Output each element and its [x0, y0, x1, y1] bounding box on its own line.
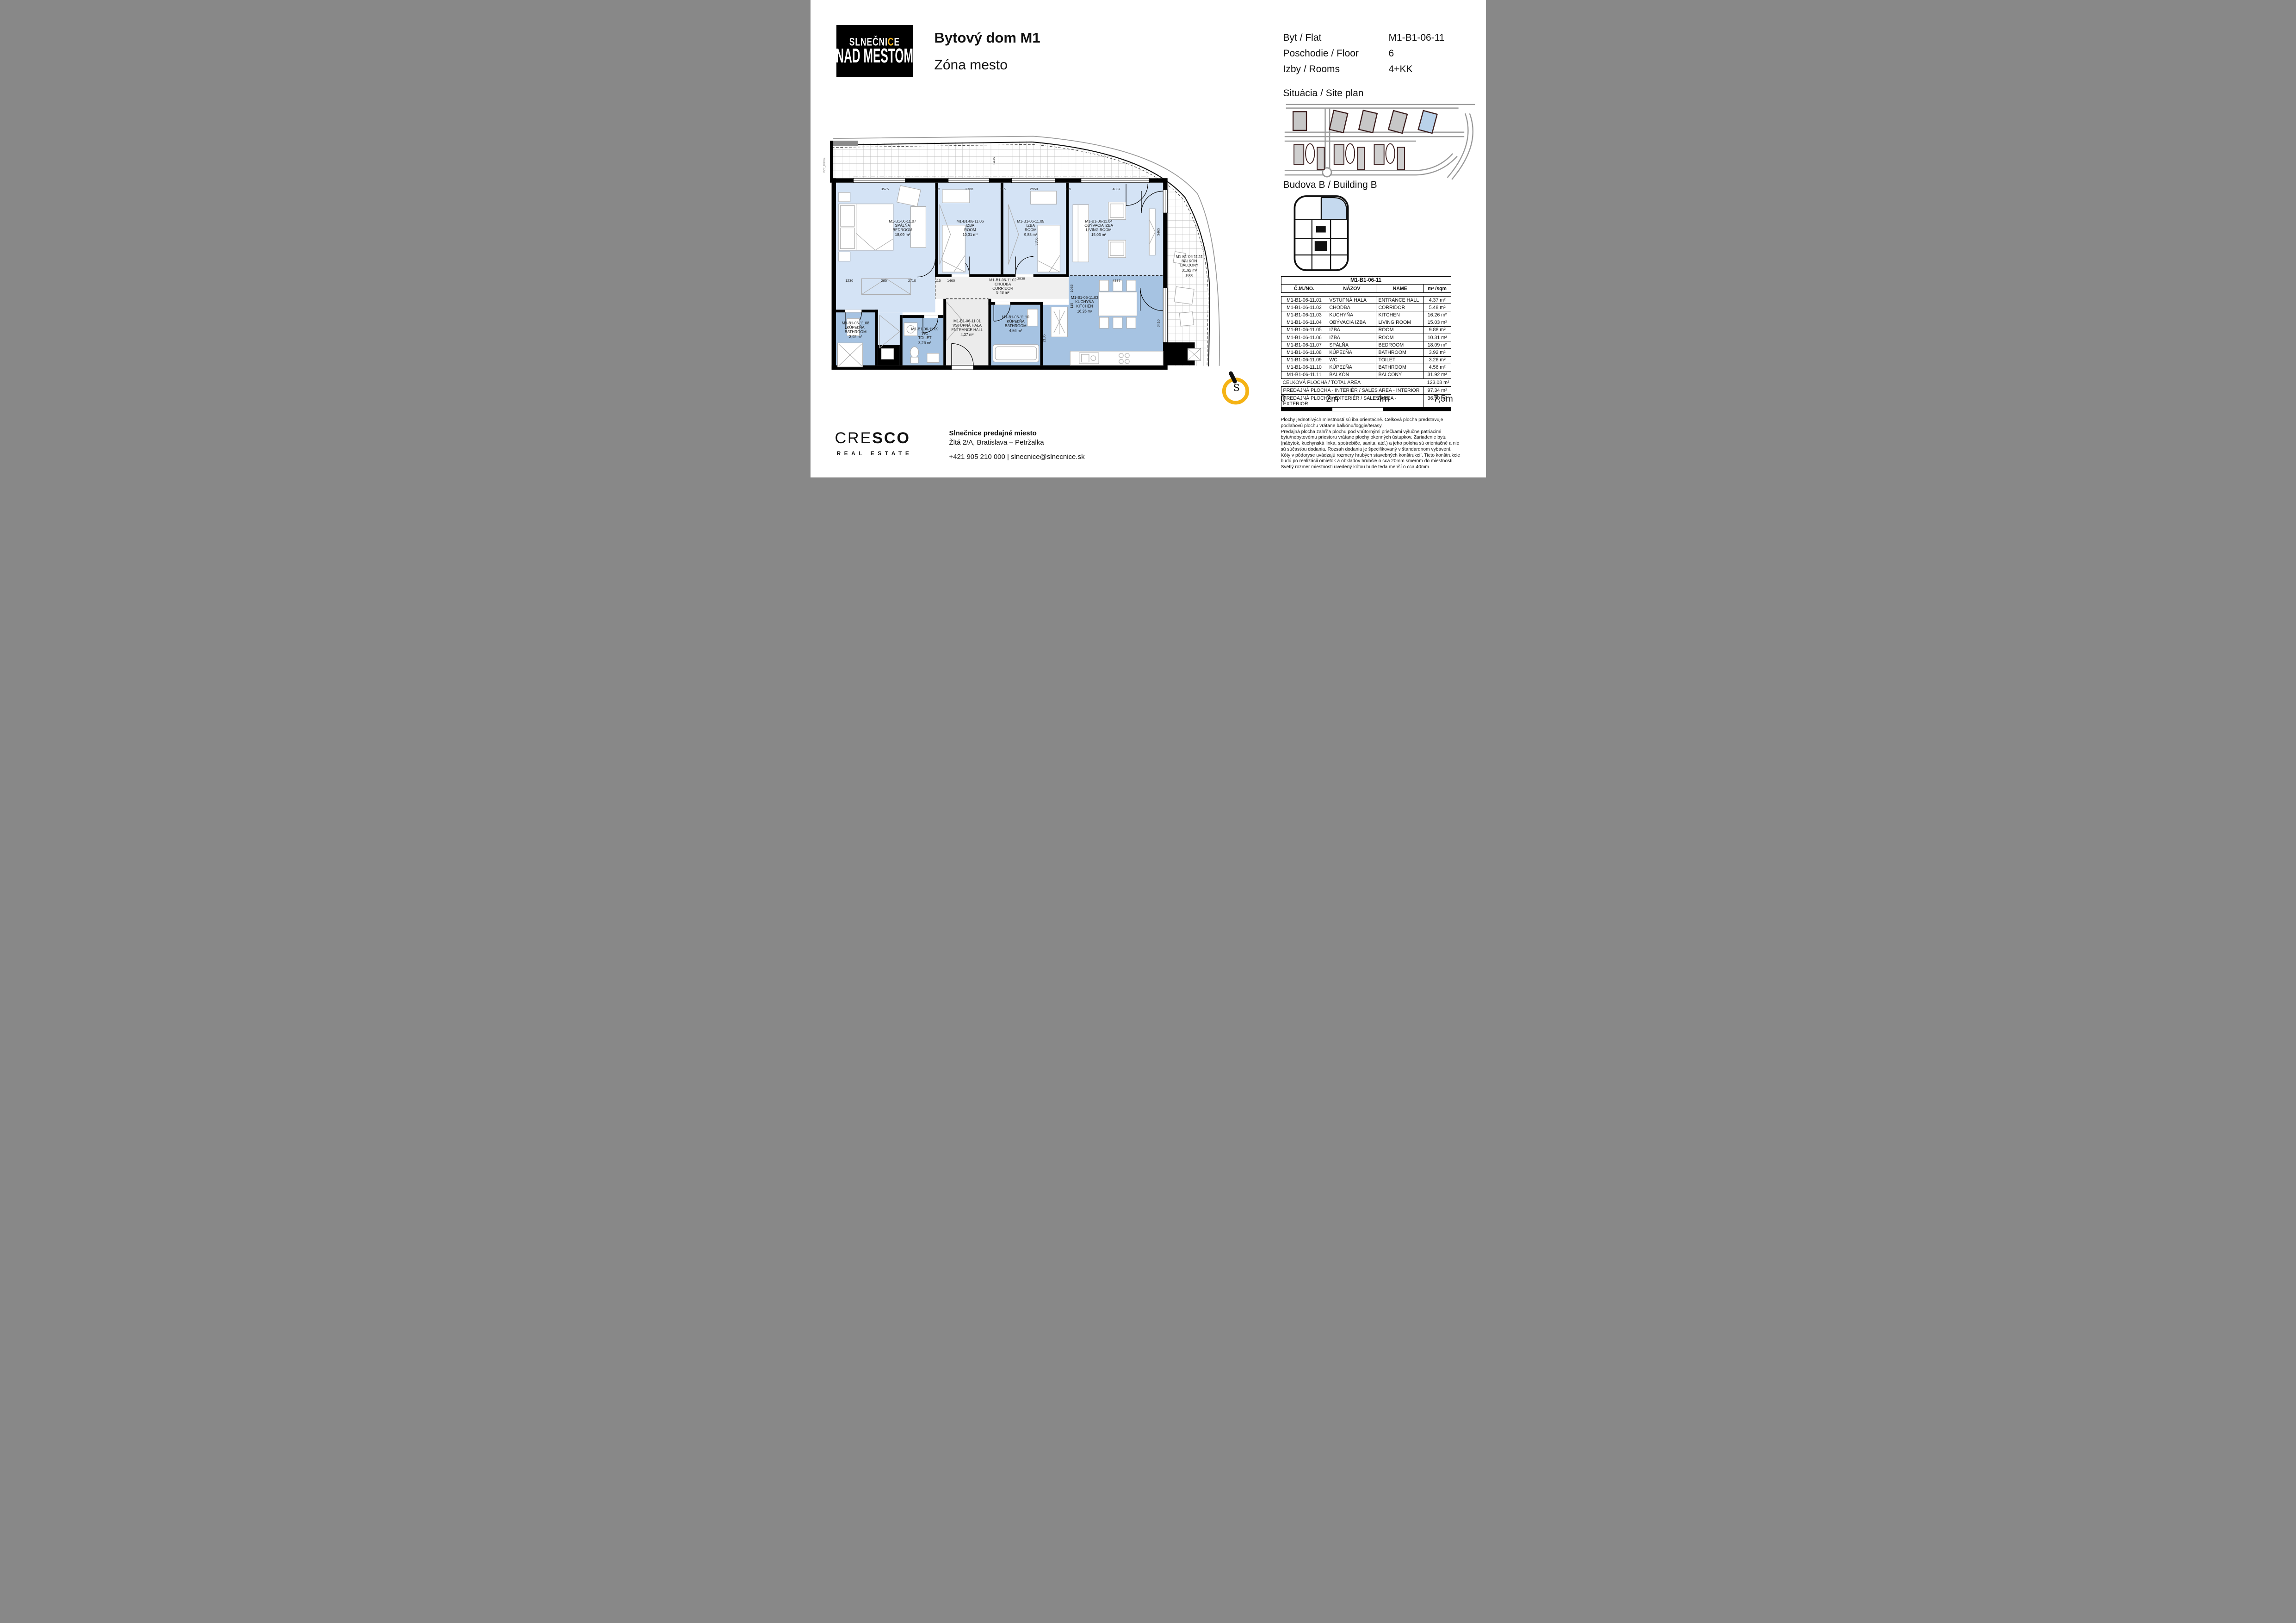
info-row-rooms: Izby / Rooms 4+KK: [1283, 64, 1468, 75]
info-row-flat: Byt / Flat M1-B1-06-11: [1283, 32, 1468, 43]
table-row: M1-B1-06-11.09WCTOILET3.26 m²: [1281, 356, 1451, 364]
svg-text:3,26 m²: 3,26 m²: [918, 341, 931, 345]
svg-text:3838: 3838: [1017, 277, 1025, 281]
table-row: M1-B1-06-11.01VSTUPNÁ HALAENTRANCE HALL4…: [1281, 297, 1451, 304]
svg-text:IZBA: IZBA: [1026, 223, 1035, 228]
svg-text:3410: 3410: [1156, 319, 1160, 327]
table-row: M1-B1-06-11.10KÚPEĽŇABATHROOM4.56 m²: [1281, 364, 1451, 371]
info-label: Byt / Flat: [1283, 32, 1389, 43]
vent-block: [832, 141, 857, 146]
svg-text:16,26 m²: 16,26 m²: [1077, 309, 1092, 313]
slnecnice-logo: SLNEČNICE NAD MESTOM: [836, 25, 913, 77]
scale-bar-segments: [1281, 407, 1451, 411]
door-gap-room06: [951, 274, 969, 277]
terrace-left-wall: [830, 141, 833, 183]
svg-text:TOILET: TOILET: [918, 336, 931, 340]
table-row: M1-B1-06-11.06IZBAROOM10.31 m²: [1281, 334, 1451, 341]
room-area-table: M1-B1-06-11 Č.M./NO. NÁZOV NAME m² /sqm …: [1281, 276, 1451, 408]
col-sqm: m² /sqm: [1423, 285, 1451, 292]
vzt-note: VZT_Klima.: [823, 157, 826, 173]
dining-table: [1099, 292, 1137, 316]
svg-text:BALCONY: BALCONY: [1180, 263, 1199, 267]
col-name: NAME: [1376, 285, 1423, 292]
north-compass: S: [1219, 370, 1252, 407]
table-row: M1-B1-06-11.07SPÁLŇABEDROOM18.09 m²: [1281, 341, 1451, 348]
svg-text:IZBA: IZBA: [965, 223, 974, 228]
col-nazov: NÁZOV: [1327, 285, 1376, 292]
svg-text:M1-B1-06-11.09: M1-B1-06-11.09: [911, 327, 938, 331]
door-gap-wc: [924, 315, 937, 318]
svg-text:115: 115: [934, 187, 940, 191]
title-building: Bytový dom M1: [934, 30, 1040, 46]
svg-text:M1-B1-06-11.03: M1-B1-06-11.03: [1071, 296, 1098, 300]
nightstand: [838, 192, 850, 202]
building-heading: Budova B / Building B: [1283, 180, 1377, 191]
scale-2m: 2m: [1326, 394, 1338, 404]
info-value: M1-B1-06-11: [1389, 32, 1445, 43]
door-gap-bath08: [845, 310, 861, 312]
window-room06: [948, 178, 989, 182]
site-roads: [1284, 105, 1474, 180]
toilet: [910, 347, 918, 358]
site-plan-heading: Situácia / Site plan: [1283, 88, 1364, 99]
svg-text:BEDROOM: BEDROOM: [892, 228, 912, 232]
svg-text:BATHROOM: BATHROOM: [1004, 324, 1026, 328]
balcony-furniture: [1174, 287, 1194, 304]
svg-text:ROOM: ROOM: [1024, 228, 1036, 232]
info-row-floor: Poschodie / Floor 6: [1283, 48, 1468, 59]
building-b-diagram: [1292, 193, 1351, 273]
svg-text:15,03 m²: 15,03 m²: [1091, 233, 1106, 237]
entrance-door-gap: [951, 365, 973, 370]
table-row: M1-B1-06-11.11BALKÓNBALCONY31.92 m²: [1281, 371, 1451, 378]
svg-text:285: 285: [881, 279, 887, 283]
window-bedroom: [853, 178, 905, 182]
svg-text:2710: 2710: [908, 279, 916, 283]
site-plan-map: [1282, 100, 1479, 180]
svg-text:1230: 1230: [845, 279, 853, 283]
svg-text:KITCHEN: KITCHEN: [1076, 304, 1093, 309]
contact-block: Slnečnice predajné miesto Žltá 2/A, Brat…: [949, 429, 1085, 461]
cresco-logo: CRESCO REAL ESTATE: [835, 429, 913, 457]
table-row: M1-B1-06-11.08KÚPEĽŇABATHROOM3.92 m²: [1281, 348, 1451, 356]
svg-text:OBÝVACIA IZBA: OBÝVACIA IZBA: [1084, 223, 1113, 228]
bed-06: [942, 225, 965, 272]
svg-text:2185: 2185: [1042, 335, 1046, 342]
svg-text:4337: 4337: [1112, 279, 1120, 283]
shaft: [881, 348, 893, 359]
svg-text:115: 115: [1000, 187, 1005, 191]
table-row: M1-B1-06-11.05IZBAROOM9.88 m²: [1281, 326, 1451, 334]
site-buildings-bottom: [1294, 144, 1405, 170]
cresco-thin: CRE: [835, 429, 873, 447]
svg-text:1660: 1660: [1185, 273, 1193, 277]
col-no: Č.M./NO.: [1281, 285, 1327, 292]
door-gap-bath10: [995, 302, 1010, 305]
wardrobe-bedroom: [910, 207, 926, 248]
table-total-row: CELKOVÁ PLOCHA / TOTAL AREA 123.08 m²: [1281, 379, 1451, 386]
info-value: 6: [1389, 48, 1394, 59]
svg-text:BALKÓN: BALKÓN: [1182, 259, 1197, 263]
table-header: Č.M./NO. NÁZOV NAME m² /sqm: [1281, 285, 1451, 293]
wc-sink: [927, 353, 939, 363]
cooktop: [1119, 353, 1123, 358]
balcony-furniture: [1179, 312, 1194, 326]
svg-text:M1-B1-06-11.08: M1-B1-06-11.08: [842, 321, 869, 325]
nightstand: [838, 252, 850, 261]
window-room05: [1011, 178, 1055, 182]
flat-info: Byt / Flat M1-B1-06-11 Poschodie / Floor…: [1283, 32, 1468, 80]
svg-text:M1-B1-06-11.07: M1-B1-06-11.07: [889, 219, 916, 223]
svg-text:3465: 3465: [1156, 228, 1160, 236]
svg-text:3575: 3575: [880, 187, 888, 191]
balcony-door-kitchen: [1163, 288, 1167, 342]
building-core: [1314, 241, 1327, 251]
svg-text:M1-B1-06-11.05: M1-B1-06-11.05: [1017, 219, 1044, 223]
svg-text:1435: 1435: [992, 157, 996, 165]
svg-text:KÚPEĽŇA: KÚPEĽŇA: [847, 325, 865, 330]
building-core: [1316, 226, 1325, 232]
cresco-bold: SCO: [872, 429, 910, 447]
site-buildings-row: [1293, 110, 1437, 133]
title-zone: Zóna mesto: [934, 57, 1040, 73]
svg-text:M1-B1-06-11.11: M1-B1-06-11.11: [1176, 254, 1203, 259]
svg-text:LIVING ROOM: LIVING ROOM: [1086, 228, 1111, 232]
sofa: [1073, 204, 1089, 262]
balcony-door-living: [1163, 190, 1167, 213]
scale-7-5m: 7,5m: [1434, 394, 1453, 404]
svg-text:KÚPEĽŇA: KÚPEĽŇA: [1007, 319, 1025, 324]
svg-text:115: 115: [1070, 303, 1074, 308]
bathtub: [993, 345, 1039, 362]
svg-text:WC: WC: [922, 332, 928, 336]
svg-text:2768: 2768: [965, 187, 973, 191]
svg-text:18,09 m²: 18,09 m²: [895, 233, 910, 237]
svg-text:115: 115: [1065, 187, 1071, 191]
compass-s: S: [1233, 382, 1239, 393]
svg-text:M1-B1-06-11.06: M1-B1-06-11.06: [956, 219, 984, 223]
floor-plan: M1-B1-06-11.07 SPÁLŇA BEDROOM 18,09 m² M…: [821, 135, 1230, 375]
svg-text:M1-B1-06-11.04: M1-B1-06-11.04: [1085, 219, 1112, 223]
page-title: Bytový dom M1 Zóna mesto: [934, 30, 1040, 73]
svg-text:4,37 m²: 4,37 m²: [960, 333, 973, 337]
logo-line2: NAD MESTOM: [836, 45, 914, 68]
svg-text:M1-B1-06-11.02: M1-B1-06-11.02: [989, 278, 1016, 282]
bed-05: [1038, 225, 1060, 272]
scale-bar: 0 2m 4m 7,5m: [1281, 394, 1451, 414]
svg-text:ENTRANCE HALL: ENTRANCE HALL: [951, 328, 983, 332]
desk-06: [942, 190, 969, 203]
info-label: Poschodie / Floor: [1283, 48, 1389, 59]
table-sales-interior-row: PREDAJNÁ PLOCHA - INTERIÉR / SALES AREA …: [1281, 386, 1451, 395]
table-title: M1-B1-06-11: [1281, 276, 1451, 285]
building-highlight-unit: [1321, 198, 1347, 220]
svg-text:5,48 m²: 5,48 m²: [996, 291, 1009, 295]
svg-text:10,31 m²: 10,31 m²: [962, 233, 978, 237]
scale-0: 0: [1281, 394, 1286, 404]
tv-unit: [1149, 209, 1155, 255]
svg-text:4337: 4337: [1112, 187, 1120, 191]
info-label: Izby / Rooms: [1283, 64, 1389, 75]
scale-4m: 4m: [1377, 394, 1389, 404]
svg-text:SPÁLŇA: SPÁLŇA: [895, 223, 910, 228]
info-value: 4+KK: [1389, 64, 1413, 75]
svg-text:BATHROOM: BATHROOM: [844, 330, 866, 334]
window-living: [1081, 178, 1149, 182]
contact-address: Žltá 2/A, Bratislava – Petržalka: [949, 439, 1085, 446]
svg-text:9,88 m²: 9,88 m²: [1024, 233, 1037, 237]
svg-text:1460: 1460: [947, 279, 955, 283]
table-body: M1-B1-06-11.01VSTUPNÁ HALAENTRANCE HALL4…: [1281, 296, 1451, 379]
cresco-realestate: REAL ESTATE: [837, 450, 913, 457]
svg-text:CORRIDOR: CORRIDOR: [992, 286, 1013, 291]
desk-05: [1030, 191, 1056, 204]
datasheet-page: SLNEČNICE NAD MESTOM Bytový dom M1 Zóna …: [811, 0, 1486, 477]
svg-text:KUCHYŇA: KUCHYŇA: [1075, 299, 1094, 304]
contact-name: Slnečnice predajné miesto: [949, 429, 1085, 437]
svg-text:M1-B1-06-11.01: M1-B1-06-11.01: [953, 319, 980, 323]
svg-text:31,92 m²: 31,92 m²: [1182, 268, 1197, 273]
svg-text:3350: 3350: [1034, 238, 1038, 246]
table-row: M1-B1-06-11.04OBÝVACIA IZBALIVING ROOM15…: [1281, 319, 1451, 326]
svg-text:4,56 m²: 4,56 m²: [1009, 329, 1022, 333]
svg-text:115: 115: [935, 279, 941, 283]
svg-text:3,92 m²: 3,92 m²: [849, 335, 862, 339]
svg-text:CHODBA: CHODBA: [995, 282, 1011, 286]
svg-text:VSTUPNÁ HALA: VSTUPNÁ HALA: [953, 323, 982, 328]
svg-text:ROOM: ROOM: [964, 228, 976, 232]
svg-text:2950: 2950: [1030, 187, 1038, 191]
disclaimer-text: Plochy jednotlivých miestností sú iba or…: [1281, 417, 1465, 471]
table-row: M1-B1-06-11.02CHODBACORRIDOR5.48 m²: [1281, 304, 1451, 311]
contact-phone-email: +421 905 210 000 | slnecnice@slnecnice.s…: [949, 453, 1085, 461]
site-highlighted-building: [1418, 111, 1437, 133]
svg-text:1035: 1035: [1070, 285, 1074, 292]
svg-text:M1-B1-06-11.10: M1-B1-06-11.10: [1002, 315, 1029, 319]
table-row: M1-B1-06-11.03KUCHYŇAKITCHEN16.26 m²: [1281, 311, 1451, 318]
